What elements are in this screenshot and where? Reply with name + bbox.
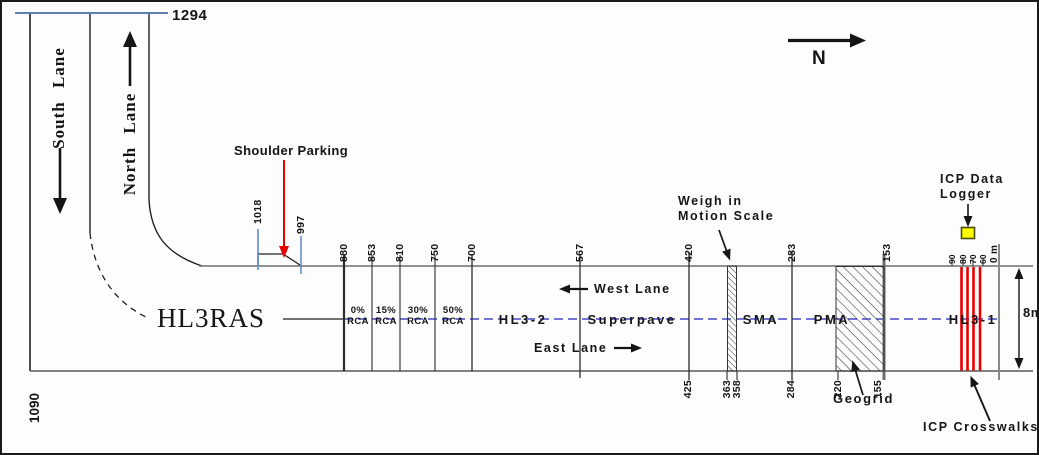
station-1294-label: 1294	[172, 7, 207, 24]
logger-square-icon	[962, 228, 975, 239]
logger-label-line2: Logger	[940, 187, 1004, 202]
station-label-top: 283	[786, 226, 798, 262]
station-label-top: 420	[683, 226, 695, 262]
curve-lane-divider-dashed	[90, 233, 148, 318]
station-1090-label: 1090	[28, 385, 42, 431]
station-label-bottom: 155	[872, 380, 884, 414]
parking-station-label: 997	[295, 198, 307, 234]
rca-percent: 15%	[369, 305, 403, 316]
compass-n-label: N	[812, 48, 826, 70]
wim-label-line1: Weigh in	[678, 194, 774, 209]
rca-material: RCA	[401, 316, 435, 327]
station-label-top: 880	[338, 226, 350, 262]
station-label-bottom: 284	[785, 380, 797, 414]
wim-pointer-arrow	[719, 230, 727, 252]
crosswalks-pointer-arrow	[974, 384, 990, 421]
rca-percent: 50%	[436, 305, 470, 316]
station-label-top: 810	[394, 226, 406, 262]
north-lane-label: North Lane	[120, 84, 140, 204]
station-label-top: 700	[466, 226, 478, 262]
logger-label-line1: ICP Data	[940, 172, 1004, 187]
figure-canvas: 1294 1090 South Lane North Lane N Should…	[0, 0, 1039, 455]
west-lane-label: West Lane	[594, 282, 671, 297]
station-label-bottom: 220	[832, 380, 844, 414]
section-label-superpave: Superpave	[562, 312, 702, 327]
rca-percent: 30%	[401, 305, 435, 316]
curve-east-edge	[149, 200, 202, 266]
rca-material: RCA	[436, 316, 470, 327]
station-label-top: 567	[574, 226, 586, 262]
weigh-in-motion-label: Weigh in Motion Scale	[678, 194, 774, 224]
shoulder-parking-outline	[258, 254, 300, 265]
crosswalk-station-label: 60	[977, 244, 989, 264]
rca-material: RCA	[369, 316, 403, 327]
section-label-hl3-1: HL3-1	[903, 312, 1039, 327]
rca-section-label: 30%RCA	[401, 305, 435, 327]
south-lane-label: South Lane	[49, 38, 69, 158]
parking-station-label: 1018	[252, 180, 264, 224]
wim-label-line2: Motion Scale	[678, 209, 774, 224]
icp-crosswalks-label: ICP Crosswalks	[923, 420, 1039, 435]
rca-section-label: 15%RCA	[369, 305, 403, 327]
shoulder-parking-label: Shoulder Parking	[234, 143, 348, 158]
rca-section-label: 50%RCA	[436, 305, 470, 327]
east-lane-label: East Lane	[534, 341, 607, 356]
icp-data-logger-label: ICP Data Logger	[940, 172, 1004, 202]
station-label-top: 750	[429, 226, 441, 262]
station-label-top: 153	[881, 226, 893, 262]
station-label-bottom: 425	[682, 380, 694, 414]
zero-station-label: 0 m	[989, 233, 1001, 263]
hl3ras-section-label: HL3RAS	[157, 303, 265, 334]
section-label-pma: PMA	[762, 312, 902, 327]
station-label-top: 853	[366, 226, 378, 262]
station-label-bottom: 358	[731, 380, 743, 414]
